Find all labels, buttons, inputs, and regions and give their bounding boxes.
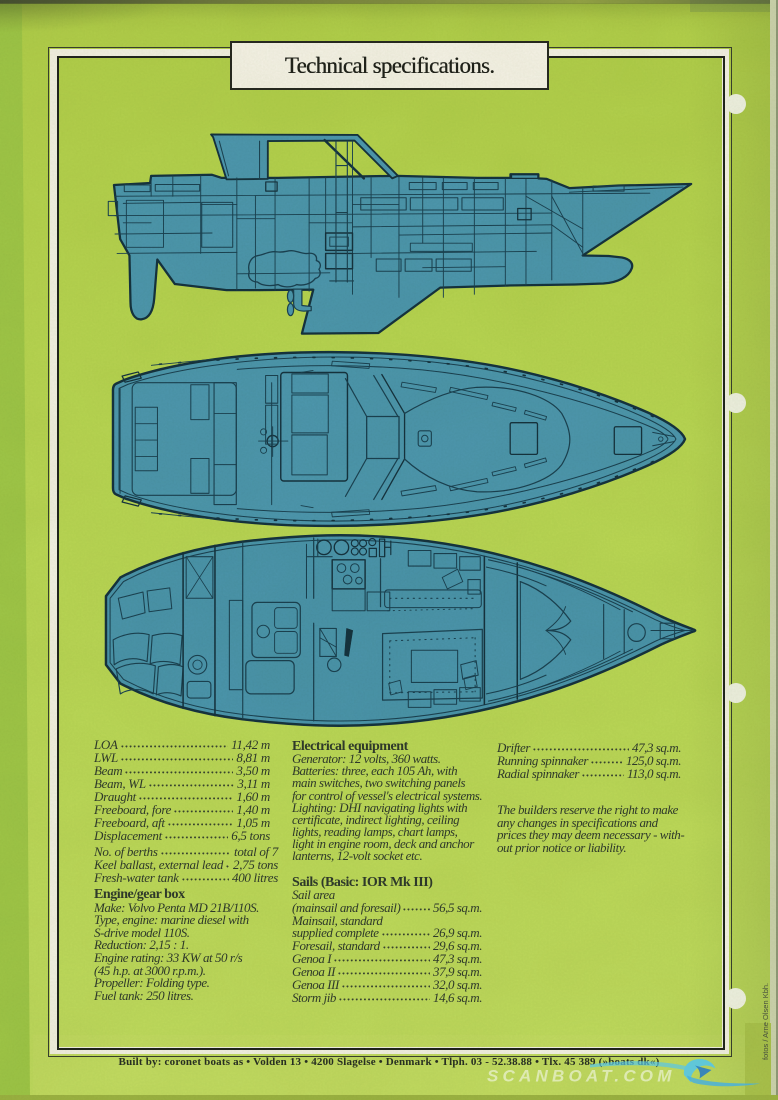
svg-text:SCANBOAT.COM: SCANBOAT.COM xyxy=(487,1067,676,1086)
